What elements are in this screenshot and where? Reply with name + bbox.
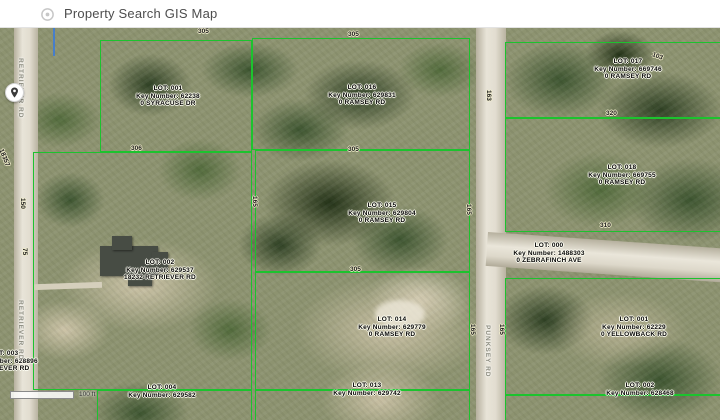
parcel-lot: LOT: 001 — [106, 85, 230, 93]
parcel-key: Key Number: 629831 — [300, 92, 424, 100]
parcel-key: Key Number: 629537 — [98, 267, 222, 275]
parcel-key: Key Number: 629582 — [100, 392, 224, 400]
parcel-label: LOT: 002 Key Number: 628468 — [578, 382, 702, 397]
parcel-key: Key Number: 62229 — [572, 324, 696, 332]
parcel-label: LOT: 004 Key Number: 629582 — [100, 384, 224, 399]
parcel-key: Key Number: 62238 — [106, 93, 230, 101]
road-label-punksey-rd: PUNKSEY RD — [484, 325, 491, 378]
parcel-address: 0 SYRACUSE DR — [106, 100, 230, 108]
app-icon — [40, 7, 55, 22]
dimension-label: 305 — [348, 31, 359, 38]
parcel-address: 0 RAMSEY RD — [300, 99, 424, 107]
parcel-key: Key Number: 629742 — [305, 390, 429, 398]
map-scale-label: 100 ft — [79, 391, 95, 398]
parcel-key: Key Number: 629779 — [330, 324, 454, 332]
map-scale-bar — [10, 391, 74, 399]
dimension-label: 305 — [348, 146, 359, 153]
parcel-label: LOT: 015 Key Number: 629804 0 RAMSEY RD — [320, 202, 444, 225]
parcel-lot: LOT: 002 — [578, 382, 702, 390]
parcel-address: 0 RAMSEY RD — [330, 331, 454, 339]
road-punksey — [476, 28, 506, 420]
parcel-address: 0 ZEBRAFINCH AVE — [487, 257, 611, 265]
dimension-label: 150 — [19, 198, 26, 209]
map-selection-artifact — [53, 28, 55, 56]
parcel-address: 0 RAMSEY RD — [560, 179, 684, 187]
parcel-lot: LOT: 017 — [566, 58, 690, 66]
parcel-key: Key Number: 1488303 — [487, 250, 611, 258]
dimension-label: 165 — [469, 324, 476, 335]
gis-map-canvas[interactable]: LOT: 001 Key Number: 62238 0 SYRACUSE DR… — [0, 28, 720, 420]
parcel-lot: LOT: 014 — [330, 316, 454, 324]
parcel-key: Key Number: 628468 — [578, 390, 702, 398]
parcel-lot: LOT: 015 — [320, 202, 444, 210]
road-label-retriever-rd-south: RETRIEVER RD — [17, 300, 24, 360]
dimension-label: 306 — [131, 145, 142, 152]
parcel-label: LOT: 014 Key Number: 629779 0 RAMSEY RD — [330, 316, 454, 339]
locate-button[interactable] — [5, 83, 24, 102]
dimension-label: 165 — [498, 324, 505, 335]
dimension-label: 305 — [350, 266, 361, 273]
parcel-label: LOT: 003 Key Number: 628896 RETRIEVER RD — [0, 350, 66, 373]
dimension-label: 163 — [485, 90, 492, 101]
parcel-key: Key Number: 669746 — [566, 66, 690, 74]
gis-app-window: Property Search GIS Map LOT: 001 Key Num… — [0, 0, 720, 420]
parcel-label: LOT: 000 Key Number: 1488303 0 ZEBRAFINC… — [487, 242, 611, 265]
parcel-address: 18232 RETRIEVER RD — [98, 274, 222, 282]
dimension-label: 320 — [606, 110, 617, 117]
parcel-address: 0 YELLOWBACK RD — [572, 331, 696, 339]
app-header: Property Search GIS Map — [0, 0, 720, 28]
dimension-label: 310 — [600, 222, 611, 229]
parcel-lot: LOT: 000 — [487, 242, 611, 250]
parcel-label: LOT: 017 Key Number: 669746 0 RAMSEY RD — [566, 58, 690, 81]
parcel-label: LOT: 002 Key Number: 629537 18232 RETRIE… — [98, 259, 222, 282]
parcel-address: 0 RAMSEY RD — [566, 73, 690, 81]
parcel-lot: LOT: 002 — [98, 259, 222, 267]
parcel-label: LOT: 018 Key Number: 669755 0 RAMSEY RD — [560, 164, 684, 187]
parcel-label: LOT: 013 Key Number: 629742 — [305, 382, 429, 397]
parcel-key: Key Number: 628896 — [0, 358, 66, 366]
parcel-address: RETRIEVER RD — [0, 365, 66, 373]
parcel-boundary-lot-002-east[interactable] — [505, 395, 720, 420]
dimension-label: 305 — [198, 28, 209, 35]
dimension-label: 165 — [465, 204, 472, 215]
dimension-label: 75 — [21, 248, 28, 255]
dimension-label: 18357 — [0, 148, 11, 167]
parcel-key: Key Number: 629804 — [320, 210, 444, 218]
parcel-label: LOT: 016 Key Number: 629831 0 RAMSEY RD — [300, 84, 424, 107]
parcel-address: 0 RAMSEY RD — [320, 217, 444, 225]
parcel-lot: LOT: 004 — [100, 384, 224, 392]
parcel-lot: LOT: 003 — [0, 350, 66, 358]
page-title: Property Search GIS Map — [64, 6, 217, 21]
location-pin-icon — [9, 87, 20, 98]
dimension-label: 165 — [251, 196, 258, 207]
parcel-label: LOT: 001 Key Number: 62238 0 SYRACUSE DR — [106, 85, 230, 108]
parcel-lot: LOT: 018 — [560, 164, 684, 172]
parcel-key: Key Number: 669755 — [560, 172, 684, 180]
parcel-lot: LOT: 013 — [305, 382, 429, 390]
parcel-lot: LOT: 016 — [300, 84, 424, 92]
parcel-lot: LOT: 001 — [572, 316, 696, 324]
parcel-label: LOT: 001 Key Number: 62229 0 YELLOWBACK … — [572, 316, 696, 339]
